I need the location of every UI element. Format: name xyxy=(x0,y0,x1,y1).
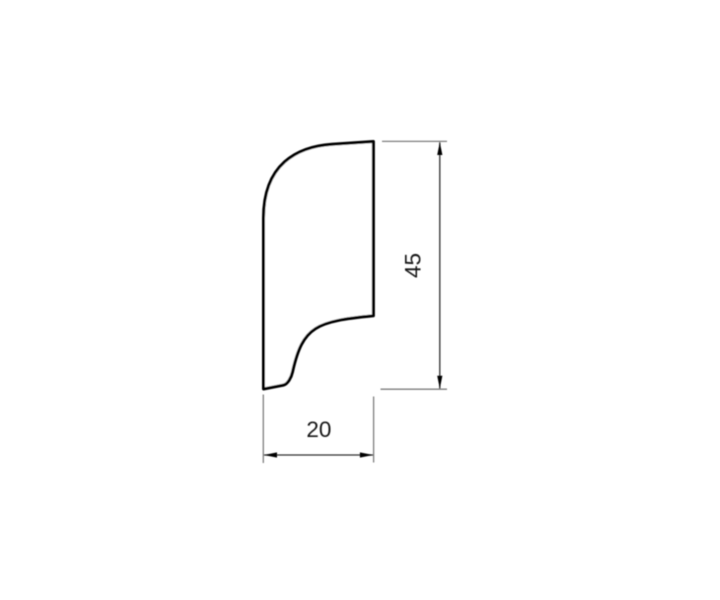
svg-text:20: 20 xyxy=(306,417,331,442)
svg-text:45: 45 xyxy=(401,253,426,278)
